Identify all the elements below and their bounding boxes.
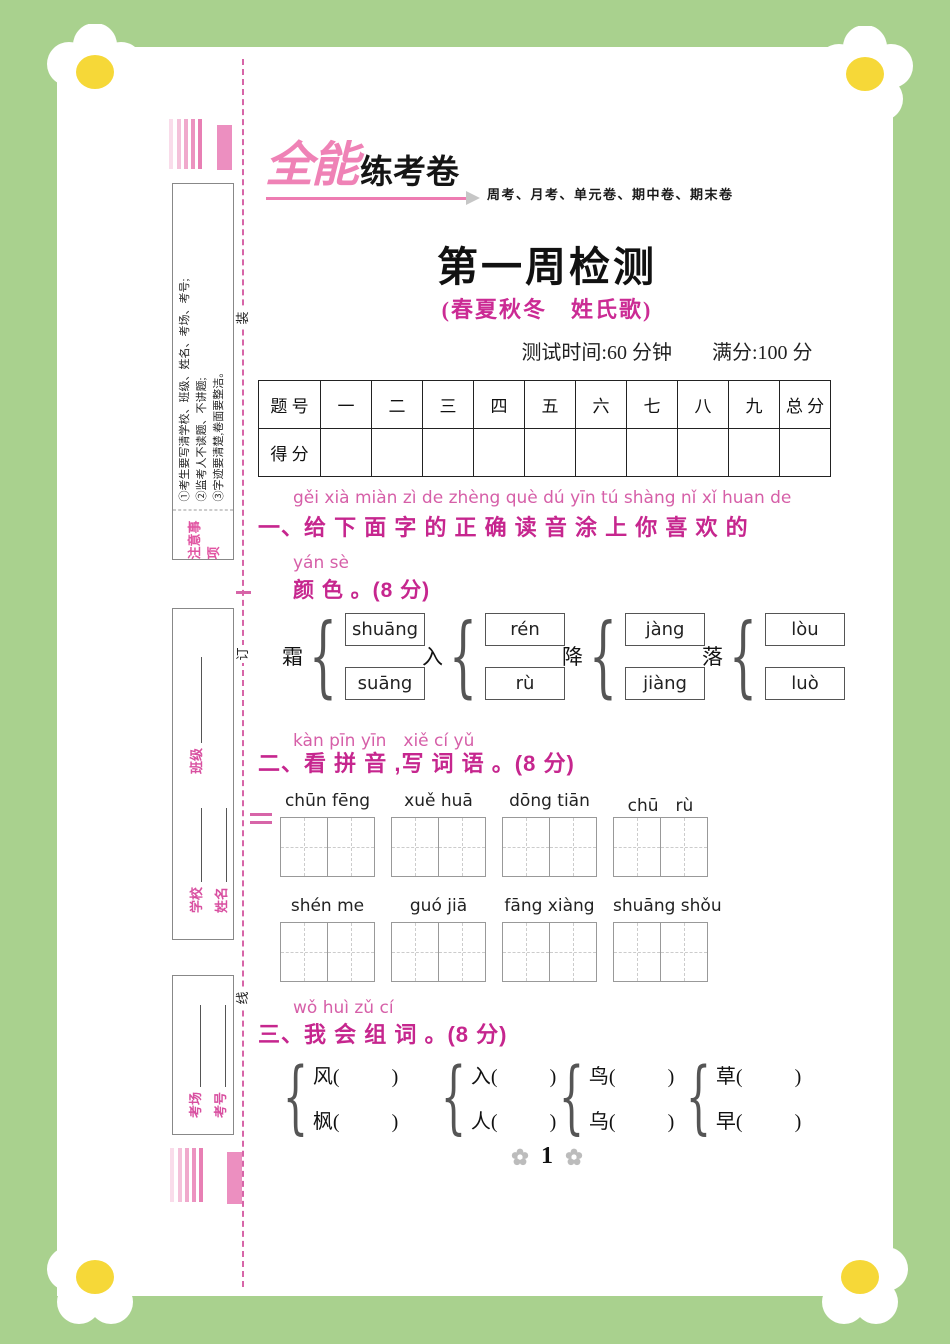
name-blank (226, 808, 227, 882)
binding-char-ding: 订 (234, 645, 252, 663)
choice-option: lòu (765, 613, 845, 646)
score-col-8: 八 (678, 381, 729, 429)
choice-option: rén (485, 613, 565, 646)
section2-title: 二、看 拼 音 ,写 词 语 。(8 分) (258, 746, 575, 778)
name-label: 姓名 (211, 887, 230, 913)
score-col-3: 三 (423, 381, 474, 429)
exam-room-blank (200, 1005, 201, 1087)
choice-option: jàng (625, 613, 705, 646)
exam-number-label: 考号 (210, 1092, 229, 1118)
notice-line-1: ①考生要写清学校、班级、姓名、考场、考号; (177, 184, 194, 501)
flower-ornament-icon (511, 1148, 529, 1166)
word-char: 风 (313, 1066, 333, 1088)
word-group-feng: { 风() 枫() (282, 1057, 398, 1137)
score-cell-empty (729, 429, 780, 477)
exam-info-box: 考场 考号 (172, 975, 234, 1135)
word-group-ru: { 入() 人() (440, 1057, 556, 1137)
character-grid (613, 817, 708, 877)
writing-grid-group: dōng tiān (502, 791, 597, 877)
character-grid (502, 817, 597, 877)
score-col-6: 六 (576, 381, 627, 429)
notice-label: 注意事项 (173, 509, 233, 559)
word-group-cao: { 草() 早() (685, 1057, 801, 1137)
brand-logo: 全能 练考卷 (265, 142, 459, 190)
class-blank (201, 657, 202, 743)
score-col-4: 四 (474, 381, 525, 429)
word-char: 入 (471, 1066, 491, 1088)
brand-sub-text: 练考卷 (360, 157, 459, 190)
score-col-1: 一 (321, 381, 372, 429)
grid-pinyin-label: fāng xiàng (502, 896, 597, 920)
character-grid (391, 922, 486, 982)
score-col-9: 九 (729, 381, 780, 429)
writing-grid-group: fāng xiàng (502, 896, 597, 982)
choice-group-luo: 落 { lòu luò (702, 612, 832, 700)
score-row-label: 得 分 (259, 429, 321, 477)
brace-icon: { (309, 612, 337, 700)
score-cell-empty (321, 429, 372, 477)
brace-icon: { (449, 612, 477, 700)
section1-pinyin2: yán sè (293, 553, 349, 573)
writing-grid-row-2: shén me guó jiā fāng xiàng shuāng shǒu (280, 896, 708, 982)
character-grid (391, 817, 486, 877)
pink-stripes-bottom (170, 1148, 210, 1202)
choice-char: 霜 (282, 641, 303, 671)
writing-grid-group: xuě huā (391, 791, 486, 877)
word-group-niao: { 鸟() 乌() (558, 1057, 674, 1137)
writing-grid-group: guó jiā (391, 896, 486, 982)
binding-mark-double-2 (250, 821, 272, 824)
section1-title2: 颜 色 。(8 分) (293, 574, 430, 604)
page-footer: 1 (262, 1143, 832, 1170)
word-char: 鸟 (589, 1066, 609, 1088)
score-cell-empty (576, 429, 627, 477)
test-meta: 测试时间:60 分钟 满分:100 分 (457, 336, 877, 365)
grid-pinyin-label: chūn fēng (280, 791, 375, 815)
brace-icon: { (686, 1057, 711, 1137)
score-cell-empty (525, 429, 576, 477)
exam-room-label: 考场 (185, 1092, 204, 1118)
exam-number-blank (225, 1005, 226, 1087)
score-col-2: 二 (372, 381, 423, 429)
choice-char: 入 (422, 641, 443, 671)
score-header-label: 题 号 (259, 381, 321, 429)
section1-pinyin: gěi xià miàn zì de zhèng què dú yīn tú s… (293, 488, 791, 508)
pink-bar-top (217, 125, 232, 170)
character-grid (613, 922, 708, 982)
word-char: 人 (471, 1111, 491, 1133)
word-char: 枫 (313, 1111, 333, 1133)
score-cell-empty (627, 429, 678, 477)
daisy-flower-bottom-left (47, 1229, 143, 1325)
brand-main-text: 全能 (265, 142, 357, 190)
score-value-row: 得 分 (259, 429, 831, 477)
daisy-flower-top-left (47, 24, 143, 120)
choice-char: 降 (562, 641, 583, 671)
school-blank (201, 808, 202, 882)
brace-icon: { (559, 1057, 584, 1137)
grid-pinyin-label: guó jiā (391, 896, 486, 920)
section1-choices: 霜 { shuāng suāng 入 { rén rù 降 { jàng (282, 612, 832, 700)
writing-grid-row-1: chūn fēng xuě huā dōng tiān chū rù (280, 791, 708, 877)
choice-group-ru: 入 { rén rù (422, 612, 552, 700)
binding-char-xian: 线 (234, 989, 252, 1007)
choice-char: 落 (702, 641, 723, 671)
page-subtitle: (春夏秋冬 姓氏歌) (262, 292, 832, 324)
brace-icon: { (589, 612, 617, 700)
grid-pinyin-label: chū rù (613, 791, 708, 815)
brace-icon: { (729, 612, 757, 700)
notice-box: 注意事项 ①考生要写清学校、班级、姓名、考场、考号; ②监考人不读题、不讲题; … (172, 183, 234, 560)
brand-tagline: 周考、月考、单元卷、期中卷、期末卷 (487, 184, 734, 203)
brace-icon: { (283, 1057, 308, 1137)
class-label: 班级 (186, 748, 205, 774)
choice-group-shuang: 霜 { shuāng suāng (282, 612, 412, 700)
paper-page: 装 订 线 注意事项 ①考生要写清学校、班级、姓名、考场、考号; ②监考人不读题… (57, 47, 893, 1296)
writing-grid-group: shén me (280, 896, 375, 982)
section3-title: 三、我 会 组 词 。(8 分) (258, 1017, 507, 1049)
school-label: 学校 (186, 887, 205, 913)
writing-grid-group: chūn fēng (280, 791, 375, 877)
score-col-5: 五 (525, 381, 576, 429)
choice-group-jiang: 降 { jàng jiàng (562, 612, 692, 700)
word-char: 早 (716, 1111, 736, 1133)
pink-bar-bottom (227, 1152, 242, 1204)
notice-line-3: ③字迹要清楚,卷面要整洁。 (211, 184, 228, 501)
notice-lines: ①考生要写清学校、班级、姓名、考场、考号; ②监考人不读题、不讲题; ③字迹要清… (173, 184, 233, 509)
word-char: 草 (716, 1066, 736, 1088)
binding-dashed-line (242, 59, 244, 1287)
daisy-flower-bottom-right (812, 1229, 908, 1325)
exam-paper-canvas: 装 订 线 注意事项 ①考生要写清学校、班级、姓名、考场、考号; ②监考人不读题… (0, 0, 950, 1344)
choice-option: jiàng (625, 667, 705, 700)
character-grid (280, 817, 375, 877)
binding-mark-double-1 (250, 813, 272, 816)
score-table: 题 号 一 二 三 四 五 六 七 八 九 总 分 得 分 (258, 380, 831, 477)
character-grid (280, 922, 375, 982)
score-col-7: 七 (627, 381, 678, 429)
student-info-box: 学校 班级 姓名 (172, 608, 234, 940)
word-char: 乌 (589, 1111, 609, 1133)
score-cell-empty (780, 429, 831, 477)
score-cell-empty (423, 429, 474, 477)
score-col-total: 总 分 (780, 381, 831, 429)
brace-icon: { (441, 1057, 466, 1137)
choice-option: shuāng (345, 613, 425, 646)
choice-option: suāng (345, 667, 425, 700)
score-cell-empty (372, 429, 423, 477)
notice-line-2: ②监考人不读题、不讲题; (194, 184, 211, 501)
score-header-row: 题 号 一 二 三 四 五 六 七 八 九 总 分 (259, 381, 831, 429)
pink-stripes-top (169, 119, 209, 169)
writing-grid-group: shuāng shǒu (613, 896, 708, 982)
grid-pinyin-label: shuāng shǒu (613, 896, 708, 920)
flower-ornament-icon (565, 1148, 583, 1166)
section3-pinyin: wǒ huì zǔ cí (293, 998, 394, 1018)
grid-pinyin-label: dōng tiān (502, 791, 597, 815)
score-cell-empty (678, 429, 729, 477)
binding-char-zhuang: 装 (234, 309, 252, 327)
page-number: 1 (541, 1143, 553, 1169)
grid-pinyin-label: shén me (280, 896, 375, 920)
binding-mark-single (236, 591, 251, 594)
writing-grid-group: chū rù (613, 791, 708, 877)
arrow-right-icon (466, 191, 480, 205)
section1-title: 一、给 下 面 字 的 正 确 读 音 涂 上 你 喜 欢 的 (258, 510, 749, 542)
page-title: 第一周检测 (262, 233, 832, 293)
character-grid (502, 922, 597, 982)
brand-underline (266, 197, 466, 200)
choice-option: rù (485, 667, 565, 700)
score-cell-empty (474, 429, 525, 477)
choice-option: luò (765, 667, 845, 700)
grid-pinyin-label: xuě huā (391, 791, 486, 815)
daisy-flower-top-right (817, 26, 913, 122)
